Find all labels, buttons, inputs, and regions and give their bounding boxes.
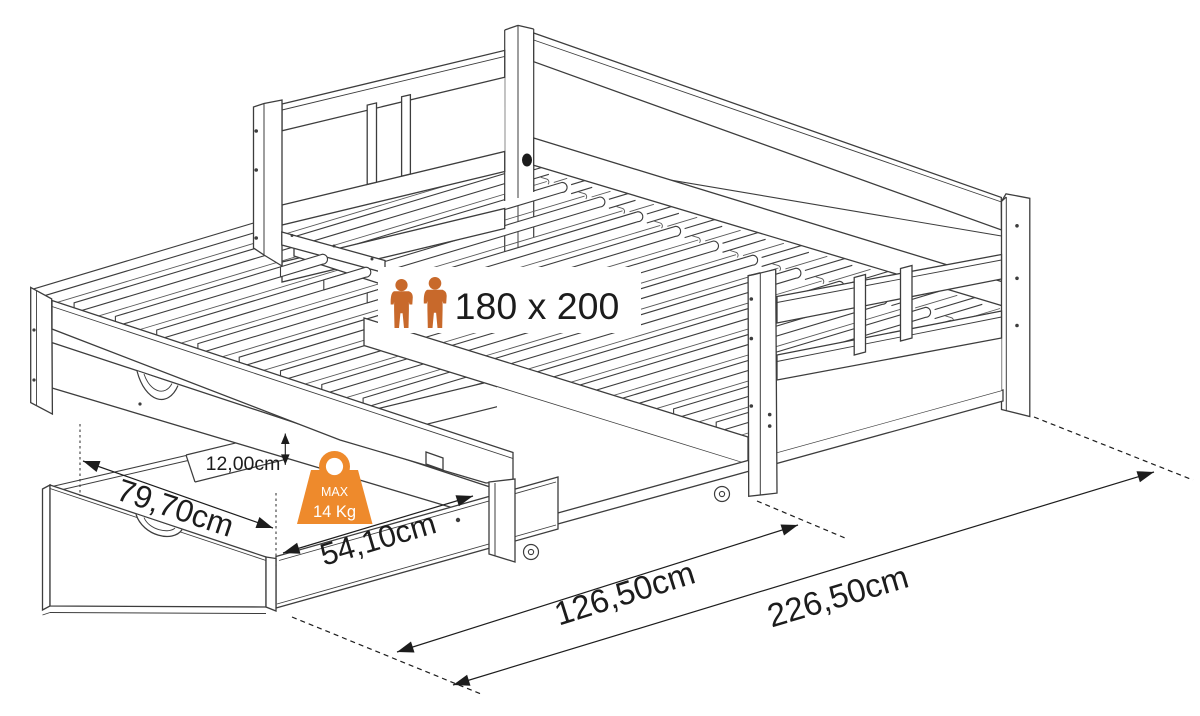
svg-text:14 Kg: 14 Kg [313,503,356,521]
svg-text:12,00cm: 12,00cm [206,453,281,475]
svg-text:180 x 200: 180 x 200 [455,285,620,327]
svg-text:226,50cm: 226,50cm [763,558,912,635]
svg-text:126,50cm: 126,50cm [550,554,699,633]
svg-text:MAX: MAX [321,485,349,499]
